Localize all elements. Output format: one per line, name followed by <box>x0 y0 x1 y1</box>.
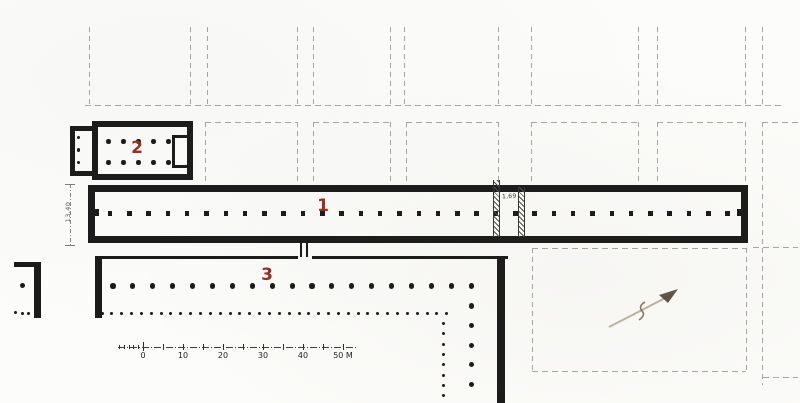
column-dot <box>469 303 474 308</box>
column-dot <box>250 283 255 288</box>
column-dot <box>238 312 241 315</box>
street-grid-line <box>746 248 747 371</box>
column-dot <box>248 312 251 315</box>
column-dot <box>150 283 155 288</box>
stoa-depth-dimension-text: 13,40 <box>64 192 72 232</box>
column-dot <box>140 312 143 315</box>
street-grid-line <box>297 122 298 183</box>
street-grid-line <box>205 122 206 183</box>
column-dot <box>347 312 350 315</box>
column-dot <box>469 362 474 367</box>
north-arrow-icon <box>585 282 685 332</box>
building-3-label: 3 <box>261 265 273 285</box>
building-2-porch-outline <box>70 126 96 176</box>
street-grid-line <box>205 122 297 123</box>
column-dot <box>20 283 25 288</box>
column-dot <box>442 363 445 366</box>
street-grid-line <box>297 27 298 105</box>
street-grid-line <box>190 27 191 105</box>
column-dot <box>369 283 374 288</box>
column-dot <box>442 374 445 377</box>
scale-tick-label: 30 <box>258 351 268 360</box>
column-dot <box>258 312 261 315</box>
street-grid-line <box>498 27 499 105</box>
column-dot <box>349 283 354 288</box>
column-dot <box>386 312 389 315</box>
column-dot <box>130 312 133 315</box>
column-dot <box>210 283 215 288</box>
column-dot <box>169 312 172 315</box>
column-dot <box>209 312 212 315</box>
column-dot <box>429 283 434 288</box>
column-dot <box>110 312 113 315</box>
stoa-passage-wall <box>306 243 308 257</box>
cross-wall-dimension-text: 1,69 <box>502 193 517 201</box>
building-2-label: 2 <box>131 138 143 158</box>
street-grid-line <box>531 122 532 183</box>
stoa-cross-wall-hatch <box>493 180 500 237</box>
column-dot <box>317 312 320 315</box>
street-grid-line <box>390 27 391 105</box>
street-grid-line <box>89 27 90 105</box>
street-grid-line <box>532 248 746 249</box>
column-dot <box>389 283 394 288</box>
column-dot <box>199 312 202 315</box>
column-dot <box>309 283 314 288</box>
stoa-passage-wall <box>300 243 302 257</box>
street-grid-line <box>638 122 639 183</box>
column-dot <box>307 312 310 315</box>
column-dot <box>110 283 115 288</box>
column-dot <box>409 283 414 288</box>
column-dot <box>120 312 123 315</box>
street-grid-line <box>85 105 785 106</box>
scale-tick-label: 0 <box>140 351 145 360</box>
column-dot <box>150 312 153 315</box>
street-grid-line <box>762 248 763 385</box>
dimension-end-tick <box>65 184 75 185</box>
street-grid-line <box>762 27 763 105</box>
column-dot <box>469 323 474 328</box>
street-grid-line <box>745 122 746 183</box>
column-dot <box>442 384 445 387</box>
dimension-end-tick <box>65 245 75 246</box>
scale-tick-label: 20 <box>218 351 228 360</box>
street-grid-line <box>498 122 499 183</box>
street-grid-line <box>313 122 390 123</box>
column-dot <box>376 312 379 315</box>
column-dot <box>445 312 448 315</box>
building-3-east-wall <box>497 256 505 403</box>
stoa-east-anta-nub <box>737 209 742 216</box>
column-dot <box>442 394 445 397</box>
building-3-north-wall <box>312 256 508 259</box>
column-dot <box>27 312 30 315</box>
column-dot <box>130 283 135 288</box>
west-fragment-east-wall <box>34 262 41 318</box>
stoa-west-anta-nub <box>94 209 99 216</box>
column-dot <box>190 283 195 288</box>
column-dot <box>278 312 281 315</box>
column-dot <box>229 312 232 315</box>
street-grid-line <box>532 248 533 371</box>
building-1-stoa-outline <box>88 185 748 243</box>
column-dot <box>416 312 419 315</box>
column-dot <box>406 312 409 315</box>
building-2-partition-stub <box>172 135 187 138</box>
column-dot <box>469 343 474 348</box>
street-grid-line <box>313 27 314 105</box>
column-dot <box>329 283 334 288</box>
column-dot <box>469 283 474 288</box>
street-grid-line <box>406 122 498 123</box>
building-2-partition-wall <box>172 135 175 168</box>
street-grid-line <box>313 122 314 183</box>
column-dot <box>469 382 474 387</box>
column-dot <box>290 283 295 288</box>
column-dot <box>449 283 454 288</box>
column-dot <box>337 312 340 315</box>
column-dot <box>219 312 222 315</box>
column-dot <box>357 312 360 315</box>
building-1-label: 1 <box>317 196 329 216</box>
column-dot <box>21 312 24 315</box>
street-grid-line <box>745 27 746 105</box>
column-dot <box>366 312 369 315</box>
street-grid-line <box>762 122 763 247</box>
column-dot <box>442 353 445 356</box>
street-grid-line <box>531 27 532 105</box>
column-dot <box>442 343 445 346</box>
street-grid-line <box>531 122 638 123</box>
column-dot <box>288 312 291 315</box>
street-grid-line <box>638 27 639 105</box>
scale-tick-label: 50 M <box>333 351 353 360</box>
column-dot <box>179 312 182 315</box>
column-dot <box>435 312 438 315</box>
street-grid-line <box>657 122 658 183</box>
column-dot <box>298 312 301 315</box>
building-2-partition-stub <box>172 165 187 168</box>
scale-tick-label: 40 <box>298 351 308 360</box>
street-grid-line <box>406 122 407 183</box>
street-grid-line <box>753 247 798 248</box>
column-dot <box>426 312 429 315</box>
column-dot <box>442 322 445 325</box>
street-grid-line <box>207 27 208 105</box>
column-dot <box>170 283 175 288</box>
street-grid-line <box>390 122 391 183</box>
column-dot <box>442 332 445 335</box>
column-dot <box>14 311 17 314</box>
street-grid-line <box>763 377 798 378</box>
stoa-cross-wall-hatch <box>518 187 525 237</box>
column-dot <box>396 312 399 315</box>
building-3-west-wall <box>95 256 102 318</box>
column-dot <box>160 312 163 315</box>
column-dot <box>327 312 330 315</box>
scale-tick-label: 10 <box>178 351 188 360</box>
site-plan: 50 M403020100 1 2 3 13,40 1,69 <box>0 0 800 403</box>
street-grid-line <box>657 27 658 105</box>
street-grid-line <box>404 27 405 105</box>
street-grid-line <box>762 122 798 123</box>
column-dot <box>230 283 235 288</box>
column-dot <box>189 312 192 315</box>
street-grid-line <box>532 371 746 372</box>
street-grid-line <box>657 122 745 123</box>
column-dot <box>268 312 271 315</box>
building-3-north-wall <box>100 256 298 259</box>
scale-bar-line <box>118 347 358 348</box>
